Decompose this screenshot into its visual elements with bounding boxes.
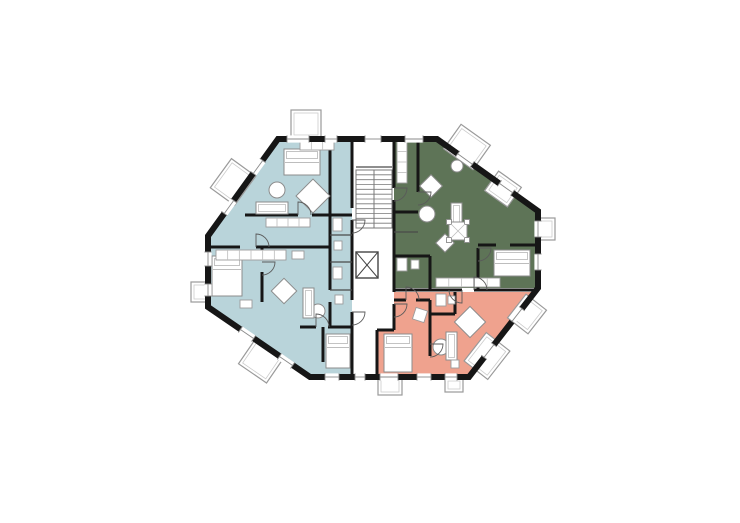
- window-icon: [325, 135, 337, 142]
- counter-icon: [216, 250, 286, 260]
- ornate-table-icon: [447, 220, 470, 243]
- fixture-icon: [411, 260, 419, 269]
- balcony: [291, 110, 321, 138]
- fixture-icon: [436, 294, 446, 306]
- table-round-icon: [451, 160, 463, 172]
- bed-icon: [494, 250, 530, 276]
- bed-icon: [326, 334, 350, 368]
- floor-plan-svg: [0, 0, 740, 523]
- window-icon: [445, 373, 457, 380]
- sofa-icon: [446, 332, 457, 360]
- sofa-icon: [303, 288, 314, 318]
- fixture-icon: [333, 267, 342, 279]
- fixture-icon: [292, 251, 304, 259]
- floor-plan: [0, 0, 740, 523]
- fixture-icon: [397, 258, 407, 271]
- fixture-icon: [451, 360, 459, 368]
- window-icon: [325, 373, 339, 380]
- counter-icon: [436, 278, 500, 287]
- window-icon: [204, 284, 211, 296]
- window-icon: [534, 254, 541, 270]
- window-icon: [365, 135, 381, 142]
- window-icon: [417, 373, 431, 380]
- counter-icon: [397, 141, 407, 183]
- fixture-icon: [333, 218, 342, 231]
- window-icon: [534, 221, 541, 237]
- stairs-icon: [356, 170, 392, 228]
- fixture-icon: [334, 241, 342, 250]
- counter-icon: [266, 218, 310, 227]
- fixture-icon: [240, 300, 252, 308]
- bed-icon: [284, 149, 320, 175]
- window-icon: [380, 373, 398, 380]
- table-round-icon: [269, 182, 285, 198]
- window-icon: [204, 252, 211, 266]
- bed-icon: [384, 334, 412, 372]
- window-icon: [405, 135, 423, 142]
- elevator-icon: [356, 252, 378, 278]
- sofa-icon: [256, 202, 288, 214]
- table-round-icon: [419, 206, 435, 222]
- window-icon: [287, 135, 309, 142]
- bed-icon: [212, 256, 242, 296]
- fixture-icon: [335, 295, 343, 304]
- window-icon: [355, 373, 365, 380]
